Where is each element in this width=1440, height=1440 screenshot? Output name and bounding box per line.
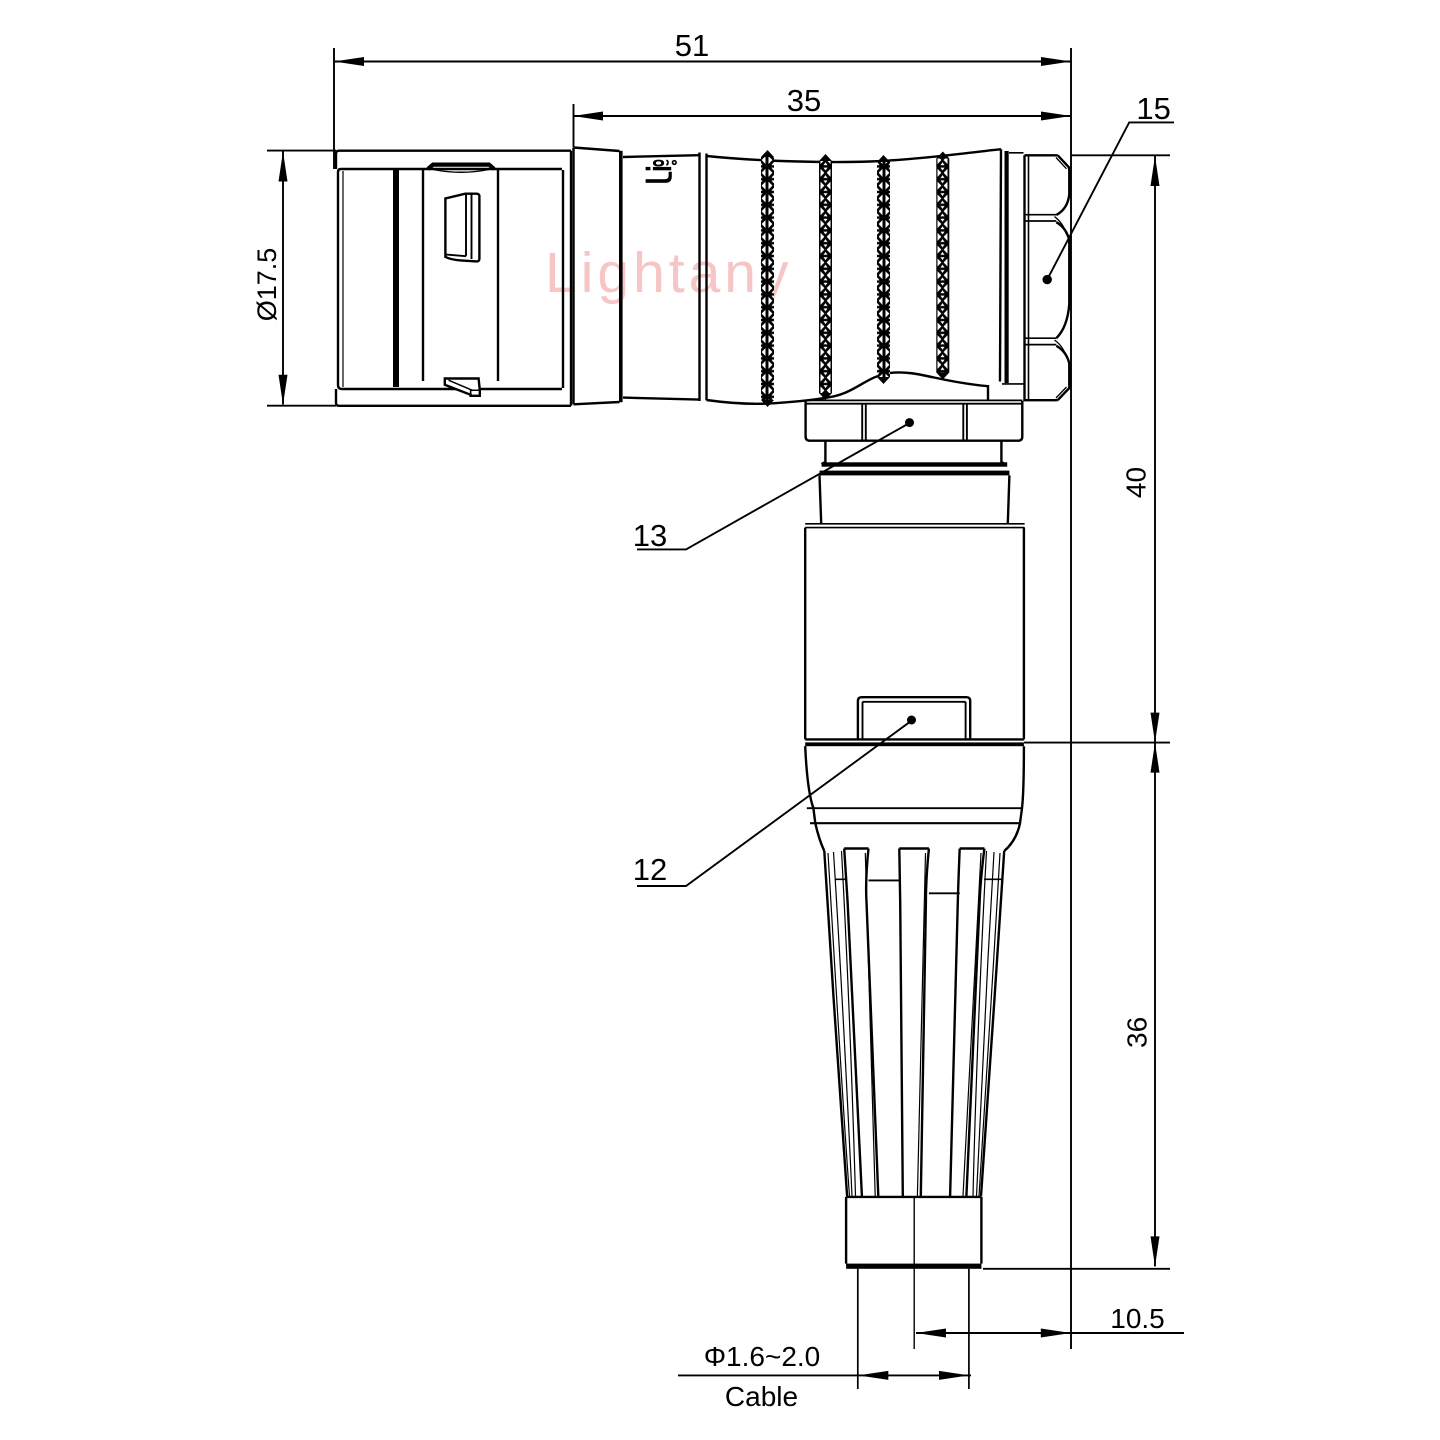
svg-text:40: 40 xyxy=(1121,467,1152,498)
svg-text:15: 15 xyxy=(1136,91,1170,126)
svg-text:Φ1.6~2.0: Φ1.6~2.0 xyxy=(704,1341,821,1372)
svg-text:12: 12 xyxy=(633,852,667,887)
svg-text:13: 13 xyxy=(633,518,667,553)
svg-text:Ø17.5: Ø17.5 xyxy=(252,248,282,322)
svg-text:Lightany: Lightany xyxy=(545,241,793,305)
svg-text:51: 51 xyxy=(675,28,709,63)
svg-text:36: 36 xyxy=(1122,1017,1153,1048)
svg-text:10.5: 10.5 xyxy=(1110,1303,1165,1334)
svg-text:Cable: Cable xyxy=(725,1381,798,1412)
svg-text:35: 35 xyxy=(787,83,821,118)
